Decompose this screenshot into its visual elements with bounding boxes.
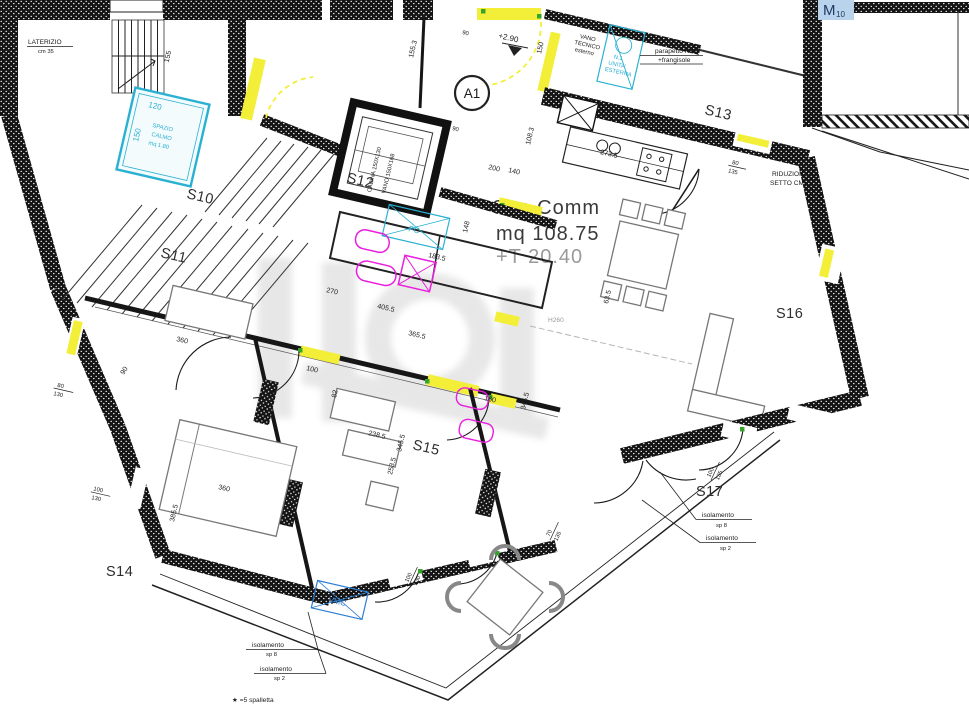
- top-stair-flight: [112, 20, 164, 93]
- top-right-walls: [803, 0, 969, 179]
- room-s13: S13: [703, 102, 733, 124]
- height-note: H260: [548, 317, 564, 324]
- unit-badge: A1: [455, 76, 489, 110]
- dim-155-3: 155.3: [408, 40, 419, 59]
- dim-80-135: 80 135: [726, 159, 747, 178]
- dim-90: 90: [120, 366, 130, 376]
- area-line3: +T 20.40: [496, 246, 583, 268]
- level-marker: +2.90: [498, 31, 528, 56]
- floor-plan-page: 155 LATERIZIO cm 35: [0, 0, 969, 717]
- iso-b1-line1: isolamento: [252, 642, 284, 649]
- kitchen-counter: [562, 127, 687, 189]
- marker-m: M: [823, 2, 836, 19]
- room-s16: S16: [776, 306, 803, 322]
- unit-badge-text: A1: [464, 86, 481, 101]
- dim-360-a: 360: [176, 336, 189, 345]
- dim-108-3: 108.3: [525, 127, 536, 146]
- stair-treads-s10: [205, 138, 335, 227]
- dim-100-130: 100 130: [89, 486, 112, 505]
- marker-sub: 10: [836, 10, 845, 19]
- room-s10: S10: [185, 186, 215, 208]
- iso-r2-line1: isolamento: [706, 535, 738, 542]
- dim-70-135-bot: 135: [554, 531, 564, 542]
- vano-tecnico-note: VANO TECNICO esterno: [572, 33, 602, 58]
- dim-200: 200: [488, 164, 501, 173]
- room-s17: S17: [696, 484, 723, 500]
- pc-label: PC: [408, 224, 421, 235]
- legend-spalletta: ★ =5 spalletta: [232, 696, 274, 704]
- dim-135: 135: [727, 168, 738, 176]
- dim-100-135: 100 135: [706, 460, 728, 484]
- dim-70-135-top: 70: [546, 529, 554, 537]
- right-outer-wall: [622, 158, 860, 470]
- parapetto-line1: parapetto H110: [655, 48, 700, 55]
- iso-b1-line2: sp 8: [266, 652, 277, 658]
- iso-b2-line1: isolamento: [260, 666, 292, 673]
- insulation-notes-bottom: isolamento sp 8 isolamento sp 2: [246, 612, 326, 682]
- dim-100-130-bot: 130: [91, 495, 102, 503]
- laterizio-note: LATERIZIO cm 35: [27, 39, 73, 55]
- iso-r1-line2: sp 8: [716, 523, 727, 529]
- wall-marker-m10: M 10: [818, 0, 854, 20]
- dim-80-130-bot: 130: [53, 391, 64, 399]
- dim-345-5-b: 345.5: [396, 434, 407, 453]
- dining-table: [601, 199, 686, 311]
- dim-365-5: 365.5: [408, 330, 427, 341]
- room-s11: S11: [159, 245, 188, 266]
- parapetto-line2: +frangisole: [658, 57, 691, 64]
- laterizio-sub: cm 35: [38, 49, 54, 55]
- sofa: [688, 313, 783, 427]
- room-s15: S15: [411, 437, 441, 459]
- floor-plan-drawing: 155 LATERIZIO cm 35: [0, 0, 969, 717]
- dim-148: 148: [462, 220, 471, 233]
- laterizio-label: LATERIZIO: [28, 39, 62, 46]
- door-tag-1: 90: [462, 30, 470, 37]
- dim-150: 150: [536, 41, 545, 54]
- door-tag-2: 90: [452, 126, 460, 133]
- level-text: +2.90: [498, 31, 520, 44]
- room-s14: S14: [106, 564, 133, 580]
- dim-80-130: 80 130: [52, 382, 75, 401]
- dim-155: 155: [164, 50, 173, 63]
- iso-r2-line2: sp 2: [720, 546, 731, 552]
- dim-70-135: 70 135: [545, 520, 567, 544]
- parapetto-note: parapetto H110 +frangisole: [640, 48, 703, 64]
- top-wall-band: [0, 0, 433, 108]
- iso-b2-line2: sp 2: [274, 676, 285, 682]
- iso-r1-line1: isolamento: [702, 512, 734, 519]
- dim-160: 160: [484, 395, 497, 404]
- dim-140: 140: [508, 167, 521, 176]
